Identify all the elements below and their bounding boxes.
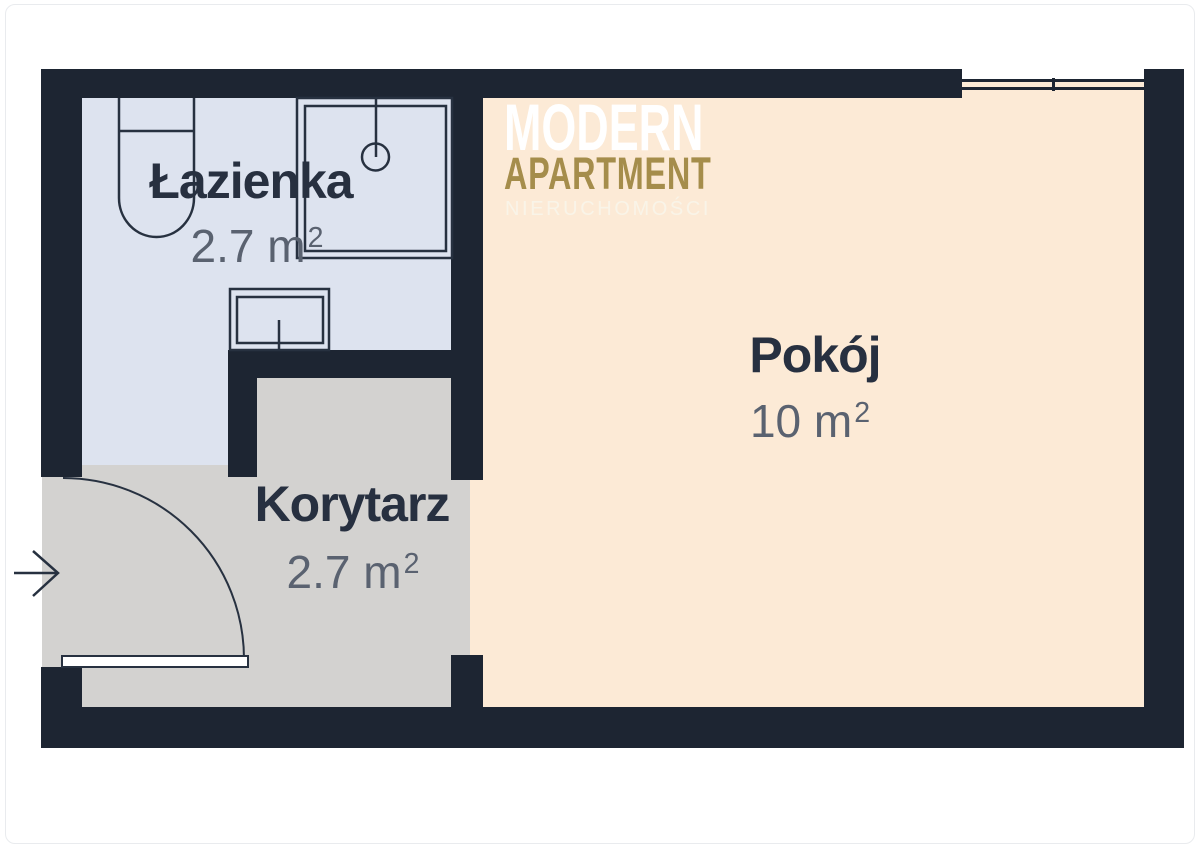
room-area-lazienka-value: 2.7 m <box>191 220 306 272</box>
brand-line-apartment: APARTMENT <box>504 151 711 196</box>
entrance-arrow-icon <box>14 551 58 596</box>
entrance-door-icon <box>62 478 248 667</box>
room-area-korytarz-sup: 2 <box>404 548 420 580</box>
room-area-korytarz: 2.7 m2 <box>287 549 420 595</box>
window-icon <box>960 78 1146 91</box>
sink-icon <box>230 289 329 350</box>
room-area-pokoj-value: 10 m <box>750 395 852 447</box>
floorplan-page: Łazienka 2.7 m2 Korytarz 2.7 m2 Pokój 10… <box>0 0 1200 849</box>
room-area-pokoj-sup: 2 <box>854 397 870 429</box>
room-label-pokoj: Pokój <box>749 330 880 380</box>
room-label-korytarz: Korytarz <box>255 479 450 529</box>
room-area-lazienka-sup: 2 <box>308 222 324 254</box>
room-area-pokoj: 10 m2 <box>750 398 870 444</box>
room-label-lazienka: Łazienka <box>149 156 352 206</box>
room-area-korytarz-value: 2.7 m <box>287 546 402 598</box>
brand-line-nieruchomosci: NIERUCHOMOŚCI <box>505 199 711 219</box>
room-area-lazienka: 2.7 m2 <box>191 223 324 269</box>
